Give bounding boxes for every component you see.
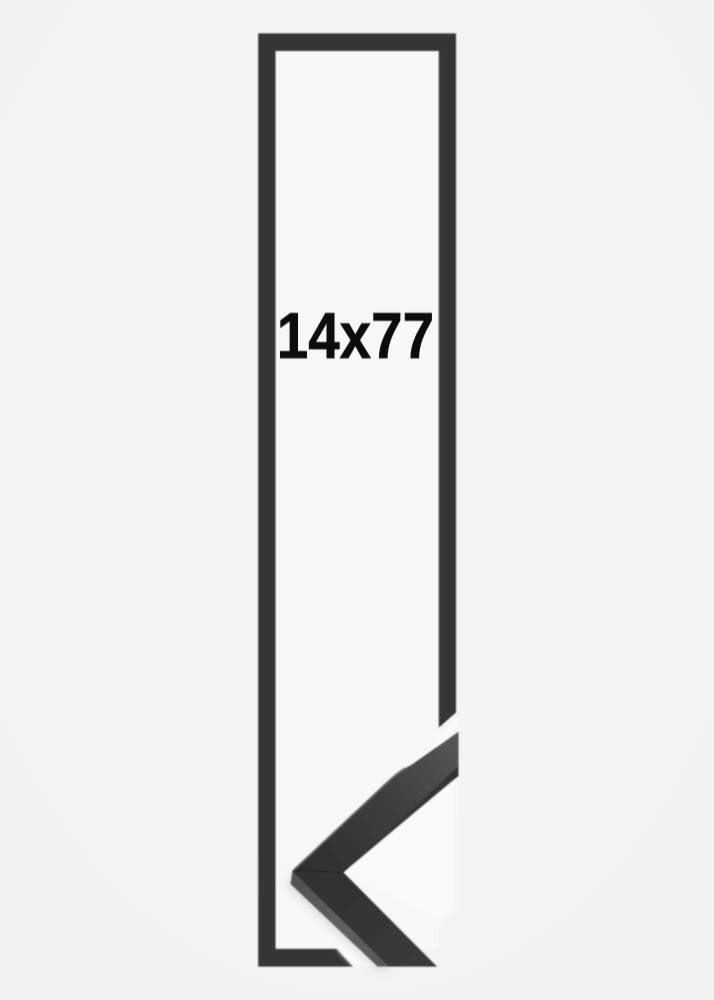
svg-text:14x77: 14x77 [277,300,434,372]
